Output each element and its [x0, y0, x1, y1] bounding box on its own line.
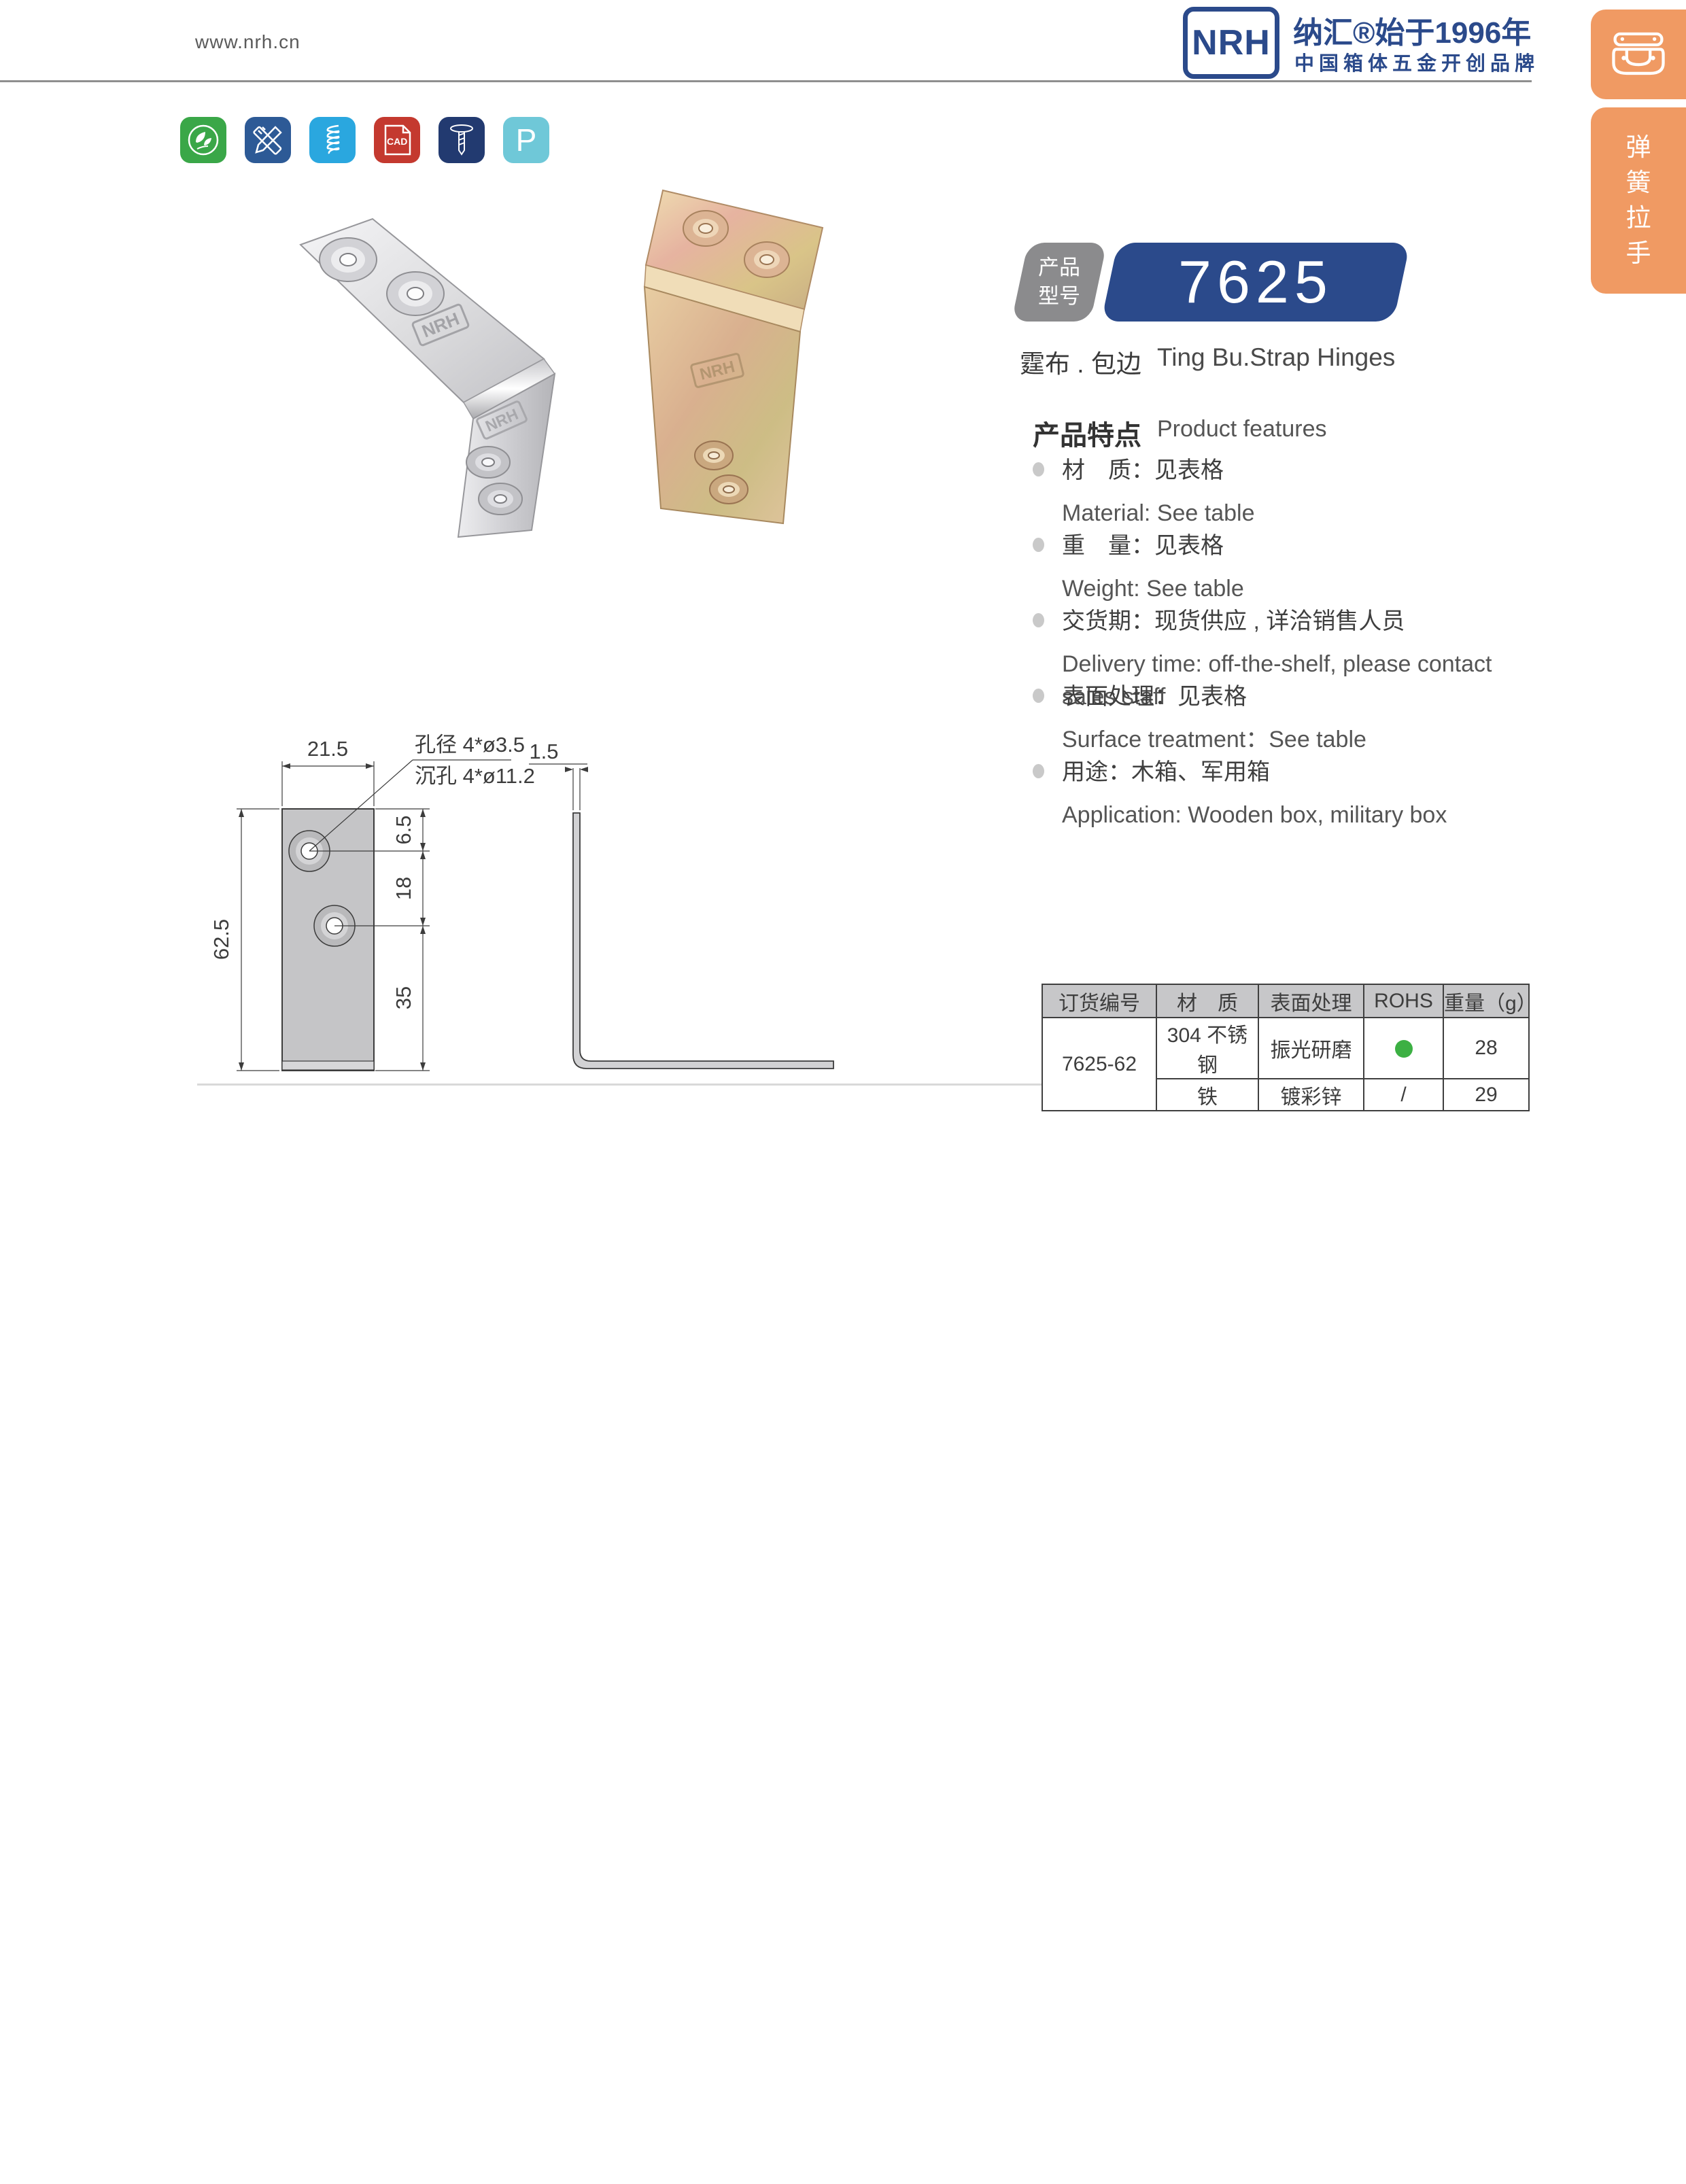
hole-bottom-1	[466, 447, 510, 478]
bullet-dot	[1033, 613, 1044, 627]
col-order-no: 订货编号	[1042, 984, 1156, 1018]
rohs-cell: /	[1364, 1079, 1443, 1111]
spring-icon[interactable]	[309, 117, 356, 163]
screw-icon[interactable]	[438, 117, 485, 163]
bullet-dot	[1033, 764, 1044, 778]
technical-drawing: 21.5 62.5 6.5 18 35 1.5 孔径 4*ø3.5 沉孔 4*ø…	[177, 707, 857, 1094]
bullet-dot	[1033, 462, 1044, 476]
p-icon-letter: P	[516, 122, 537, 158]
rohs-cell	[1364, 1018, 1443, 1079]
hole-top-1	[320, 238, 377, 281]
spec-table: 订货编号 材 质 表面处理 ROHS 重量（g） 7625-62 304 不锈钢…	[1042, 984, 1530, 1111]
product-subtitle-cn: 霆布 . 包边	[1020, 343, 1141, 380]
sidebar-char: 簧	[1626, 170, 1651, 196]
header-divider	[0, 80, 1532, 82]
p-icon[interactable]: P	[503, 117, 549, 163]
sidebar-category-latch[interactable]	[1591, 10, 1686, 99]
feature-item-material: 材 质：见表格 Material: See table	[1033, 454, 1549, 530]
material-cell: 铁	[1156, 1079, 1258, 1111]
nrh-logo-text: NRH	[1192, 22, 1271, 63]
brand-tagline-1: 纳汇®始于1996年	[1293, 8, 1531, 52]
dim-width: 21.5	[307, 737, 348, 761]
draw-latch-icon	[1609, 25, 1668, 84]
feature-icon-row: CAD P	[180, 117, 549, 163]
features-heading-cn: 产品特点	[1033, 413, 1141, 453]
hole-top-2	[387, 272, 444, 315]
brand-tagline-2: 中国箱体五金开创品牌	[1294, 48, 1539, 76]
website-url[interactable]: www.nrh.cn	[195, 31, 300, 53]
dim-height: 62.5	[209, 919, 233, 960]
hole-bottom-2	[710, 475, 748, 504]
surface-cell: 镀彩锌	[1258, 1079, 1364, 1111]
rohs-pass-dot	[1395, 1040, 1413, 1058]
bullet-dot	[1033, 689, 1044, 703]
feature-item-weight: 重 量：见表格 Weight: See table	[1033, 530, 1549, 605]
cad-file-icon[interactable]: CAD	[374, 117, 420, 163]
hole-bottom-2	[479, 483, 522, 515]
sidebar-category-spring-handle[interactable]: 弹 簧 拉 手	[1591, 107, 1686, 294]
model-label-badge: 产品 型号	[1012, 243, 1107, 322]
hole-top-2	[744, 242, 789, 277]
bullet-dot	[1033, 538, 1044, 552]
model-number: 7625	[1178, 247, 1333, 317]
feature-item-surface: 表面处理：见表格 Surface treatment：See table	[1033, 680, 1549, 756]
hole-bottom-1	[695, 441, 733, 470]
col-surface: 表面处理	[1258, 984, 1364, 1018]
svg-text:CAD: CAD	[387, 136, 407, 147]
sidebar-char: 手	[1626, 241, 1651, 266]
model-number-badge: 7625	[1101, 243, 1411, 322]
material-cell: 304 不锈钢	[1156, 1018, 1258, 1079]
design-tools-icon[interactable]	[245, 117, 291, 163]
hole-note-1: 孔径 4*ø3.5	[415, 733, 525, 757]
sidebar-char: 拉	[1626, 205, 1651, 231]
eco-leaf-icon[interactable]	[180, 117, 226, 163]
table-header-row: 订货编号 材 质 表面处理 ROHS 重量（g）	[1042, 984, 1529, 1018]
nrh-logo: NRH	[1183, 7, 1279, 79]
col-rohs: ROHS	[1364, 984, 1443, 1018]
product-photo-zinc: NRH	[598, 170, 911, 564]
hole-top-1	[683, 211, 728, 246]
table-row: 7625-62 304 不锈钢 振光研磨 28	[1042, 1018, 1529, 1079]
surface-cell: 振光研磨	[1258, 1018, 1364, 1079]
model-label-line2: 型号	[1038, 282, 1080, 311]
weight-cell: 29	[1443, 1079, 1529, 1111]
col-material: 材 质	[1156, 984, 1258, 1018]
weight-cell: 28	[1443, 1018, 1529, 1079]
feature-item-application: 用途：木箱、军用箱 Application: Wooden box, milit…	[1033, 756, 1549, 831]
dim-hole-offset: 6.5	[392, 815, 415, 844]
hole-note-2: 沉孔 4*ø11.2	[415, 764, 535, 788]
catalog-page: www.nrh.cn NRH 纳汇®始于1996年 中国箱体五金开创品牌	[0, 0, 1686, 2184]
col-weight: 重量（g）	[1443, 984, 1529, 1018]
product-subtitle-en: Ting Bu.Strap Hinges	[1157, 343, 1395, 372]
sidebar-char: 弹	[1626, 135, 1651, 160]
features-heading-en: Product features	[1157, 416, 1326, 443]
dim-thickness: 1.5	[529, 740, 558, 763]
dim-hole-spacing: 18	[392, 877, 415, 900]
model-label-line1: 产品	[1038, 254, 1080, 282]
product-photo-stainless: NRH NRH	[224, 177, 578, 598]
order-no: 7625-62	[1042, 1018, 1156, 1111]
dim-hole-bottom: 35	[392, 986, 415, 1009]
